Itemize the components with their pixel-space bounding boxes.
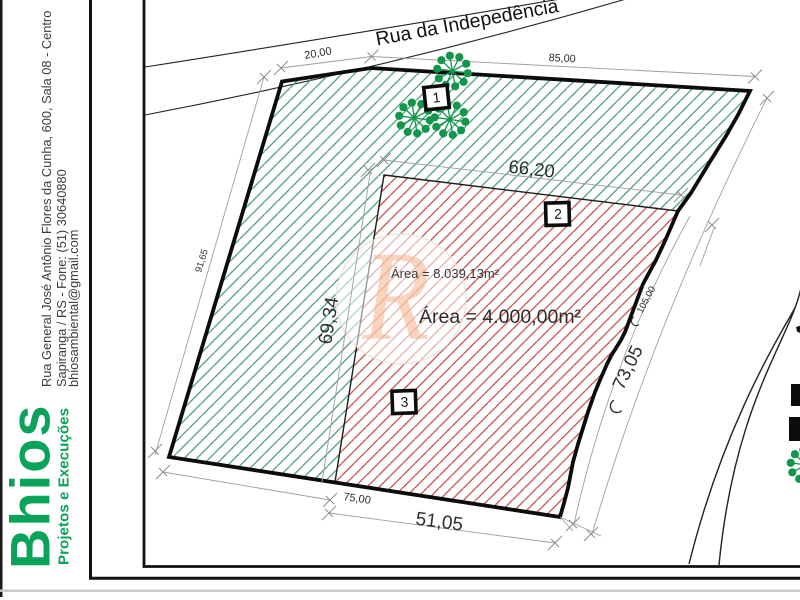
svg-text:3: 3	[400, 394, 409, 410]
svg-text:Área = 8.039,13m²: Área = 8.039,13m²	[391, 266, 500, 281]
svg-text:Rua General José Antônio Flore: Rua General José Antônio Flores da Cunha…	[39, 11, 54, 387]
svg-text:2: 2	[554, 206, 562, 222]
svg-text:bhiosambiental@gmail.com: bhiosambiental@gmail.com	[66, 230, 81, 387]
svg-text:85,00: 85,00	[548, 52, 576, 65]
svg-text:R: R	[361, 225, 429, 367]
svg-text:Bhios: Bhios	[0, 403, 62, 569]
svg-text:Área = 4.000,00m²: Área = 4.000,00m²	[419, 305, 582, 328]
svg-text:Projetos e Execuções: Projetos e Execuções	[56, 408, 73, 565]
